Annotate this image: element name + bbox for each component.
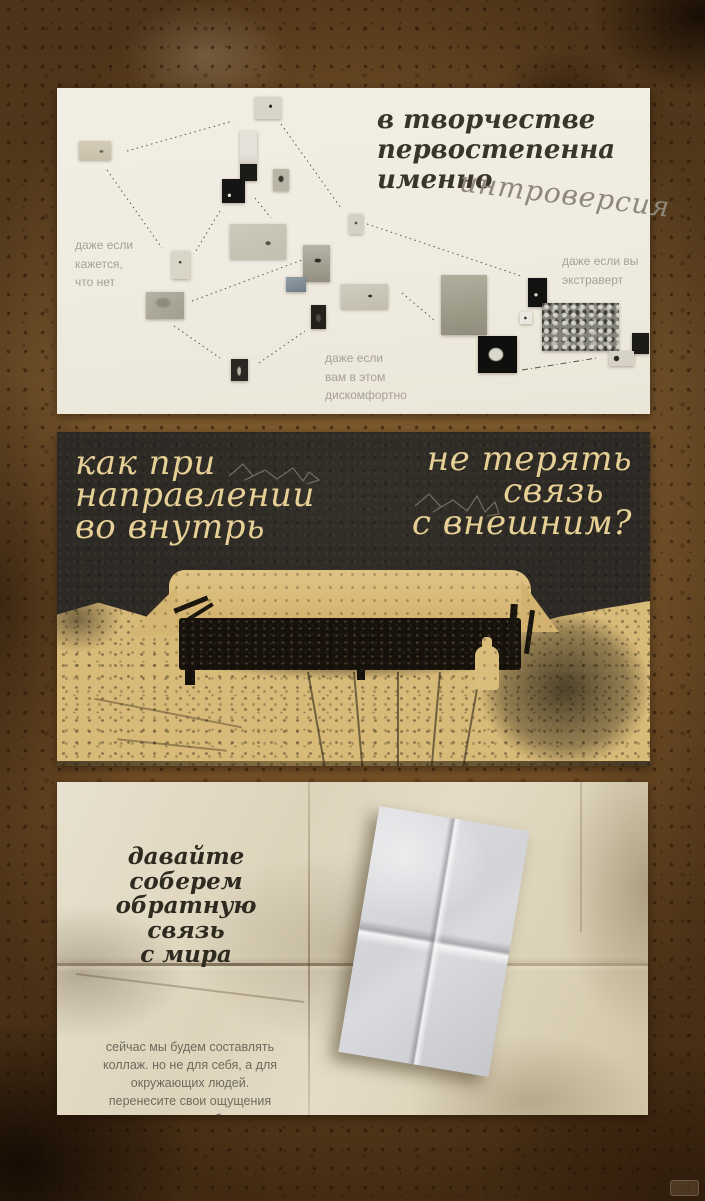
folded-paper-sheet: [338, 806, 529, 1077]
photo-thumbnail: [542, 303, 619, 351]
question-right-text: не терять связь с внешним?: [412, 444, 632, 540]
note-line: даже если: [75, 236, 133, 255]
intro-note-bottom: даже если вам в этом дискомфортно: [325, 349, 407, 405]
photo-thumbnail: [255, 97, 281, 119]
question-line: во внутрь: [75, 512, 315, 544]
feedback-title: давайте соберем обратную связь с мира: [83, 845, 289, 968]
feedback-instructions: сейчас мы будем составлять коллаж. но не…: [101, 1038, 279, 1116]
photo-thumbnail: [478, 336, 517, 373]
paper-crease-diagonal: [76, 973, 305, 1003]
paper-crease-vertical: [308, 782, 310, 1115]
intro-note-left: даже если кажется, что нет: [75, 236, 133, 292]
feedback-title-line: давайте соберем: [83, 845, 289, 894]
note-line: кажется,: [75, 255, 133, 274]
coffee-stained-poster: в творчестве первостепенна именно интров…: [0, 0, 705, 1201]
feedback-title-line: обратную связь: [83, 894, 289, 943]
paper-crease-vertical: [580, 782, 582, 932]
photo-thumbnail: [520, 312, 532, 324]
photo-thumbnail: [273, 169, 289, 191]
photo-thumbnail: [146, 292, 184, 319]
photo-thumbnail: [230, 224, 286, 259]
photo-thumbnail: [632, 333, 649, 354]
note-line: дискомфортно: [325, 386, 407, 405]
photo-thumbnail: [311, 305, 326, 329]
photo-thumbnail: [172, 251, 190, 279]
photo-thumbnail: [240, 131, 257, 165]
question-left-text: как при направлении во внутрь: [75, 448, 315, 544]
slide-question: как при направлении во внутрь не терять …: [57, 432, 650, 766]
photo-thumbnail: [79, 141, 111, 160]
note-line: что нет: [75, 273, 133, 292]
photo-thumbnail: [303, 245, 330, 282]
feedback-title-line: с мира: [83, 943, 289, 968]
intro-note-right: даже если вы экстраверт: [562, 252, 638, 289]
question-line: с внешним?: [412, 508, 632, 540]
photo-thumbnail: [441, 275, 487, 335]
intro-title-line: в творчестве: [377, 105, 615, 135]
photo-thumbnail: [341, 284, 388, 309]
slide-feedback: давайте соберем обратную связь с мира се…: [57, 782, 648, 1115]
watermark-badge: [670, 1180, 699, 1196]
photo-thumbnail: [231, 359, 248, 381]
intro-title-line: первостепенна: [377, 135, 615, 165]
note-line: вам в этом: [325, 368, 407, 387]
slide-introversion: в творчестве первостепенна именно интров…: [57, 88, 650, 414]
photo-thumbnail: [222, 179, 245, 203]
note-line: даже если вы: [562, 252, 638, 271]
note-line: экстраверт: [562, 271, 638, 290]
note-line: даже если: [325, 349, 407, 368]
photo-thumbnail: [609, 351, 634, 366]
photo-thumbnail: [349, 214, 363, 234]
photo-thumbnail: [286, 277, 306, 292]
